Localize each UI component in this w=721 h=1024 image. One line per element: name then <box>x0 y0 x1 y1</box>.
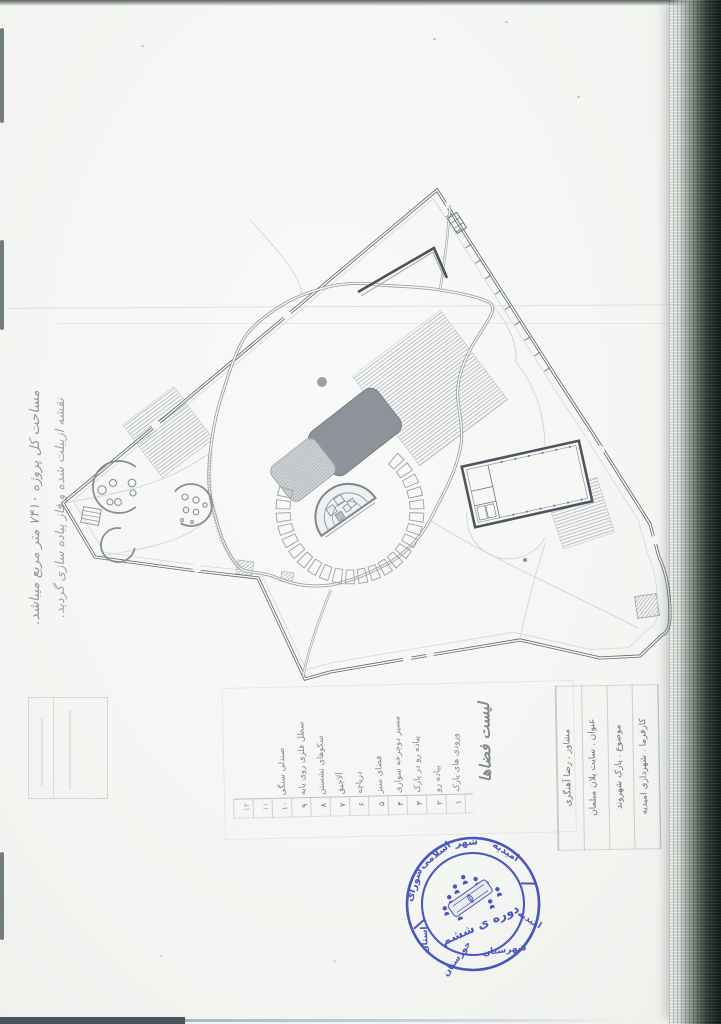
stamp-arc-word: شهرستان <box>482 943 527 958</box>
scanner-edge-bottom-light <box>185 1019 625 1022</box>
legend-item-number: ۱۲ <box>242 799 251 814</box>
scanner-edge-band <box>669 0 721 1024</box>
official-stamp: شورای اسلامی شهر امیدیه استان خوزستان شه… <box>385 824 561 992</box>
stamp-outer-ring <box>388 824 557 989</box>
legend-item-number: ۷ <box>338 797 347 812</box>
legend-item-number: ۶ <box>357 797 366 812</box>
hatch-square-corner <box>635 594 660 619</box>
legend-title: لیست فضاها <box>475 696 495 788</box>
title-block: کارفرما . شهرداری امیدیه موضوع . پارک شه… <box>555 684 662 851</box>
scanner-edge-bottom <box>0 1017 185 1024</box>
faint-text-line <box>41 718 43 786</box>
legend-item-number: ۴ <box>396 796 405 811</box>
legend-item: ورودی های پارک <box>450 700 462 792</box>
title-block-sheet-title: عنوان . سایت پلان مبلمان <box>587 692 600 842</box>
title-block-consultant: مشاور . رضا آهنگری <box>562 693 575 843</box>
scanner-edge-left <box>0 240 4 330</box>
legend-item: فضای سبز <box>373 701 385 793</box>
stamp-arc-word: امیدیه <box>490 839 521 864</box>
paper-speck <box>505 21 508 23</box>
paper-speck <box>577 96 580 98</box>
title-block-client: کارفرما . شهرداری امیدیه <box>638 691 651 841</box>
tree-circles <box>98 479 207 523</box>
tree-planter-arcs <box>93 461 212 562</box>
title-block-subject: موضوع . پارک شهروند <box>613 692 626 842</box>
legend-item-number: ۹ <box>300 798 309 813</box>
legend-item: پیاده رو <box>431 700 443 792</box>
legend-item-number: ۱۰ <box>280 799 289 814</box>
stamp-arc-word: شهر <box>454 836 479 849</box>
scanned-drawing-sheet: مساحت کل پروژه ۷۴۱۰ متر مربع میباشد. نقش… <box>0 0 721 1024</box>
legend-item: صندلی سنگی <box>276 704 288 796</box>
planting-hatch-left <box>123 386 214 477</box>
legend-item-number: ۲ <box>435 795 444 810</box>
legend-item-number: ۳ <box>415 795 424 810</box>
legend-item: سطل فلزی روی پایه <box>296 703 308 795</box>
legend-item: آلاچیق <box>334 702 346 794</box>
legend-item-number: ۵ <box>377 796 386 811</box>
paper-speck <box>160 955 163 957</box>
legend-item-number: ۱ <box>454 795 463 810</box>
scanner-edge-left <box>0 852 4 940</box>
legend-item-number: ۸ <box>319 798 328 813</box>
paper-speck <box>141 45 144 47</box>
scanner-edge-top <box>0 0 690 6</box>
steps-ladder <box>81 507 102 526</box>
info-box-divider <box>53 698 54 798</box>
stamp-arc-word: استان <box>420 926 431 953</box>
stamp-separator-right <box>521 879 535 888</box>
side-annotation-area: مساحت کل پروژه ۷۴۱۰ متر مربع میباشد. <box>27 325 43 690</box>
legend-item: مسیر دوچرخه سواری <box>392 701 404 793</box>
faint-info-box <box>28 697 108 799</box>
stamp-arc-word: اسلامی <box>417 840 453 872</box>
legend-item: سکوهای نشستن <box>315 703 327 795</box>
legend-table: لیست فضاها ورودی های پارک پیاده رو پیاده… <box>222 680 577 840</box>
stamp-outer-ring-ghost <box>389 824 558 989</box>
faint-text-line <box>69 710 71 790</box>
paper-speck <box>333 960 336 962</box>
legend-item: پیاده رو در پارک <box>411 701 423 793</box>
legend-item: دریاچه <box>353 702 365 794</box>
path-node-dot <box>523 558 527 562</box>
legend-item-number: ۱۱ <box>261 799 270 814</box>
side-annotation-asbuilt: نقشه ازبیلت شده و فاز پیاده سازی گردید. <box>52 328 67 688</box>
small-pad <box>317 377 327 387</box>
scanner-edge-left <box>0 28 4 123</box>
site-plan-drawing <box>40 160 684 705</box>
paper-speck <box>433 38 436 40</box>
